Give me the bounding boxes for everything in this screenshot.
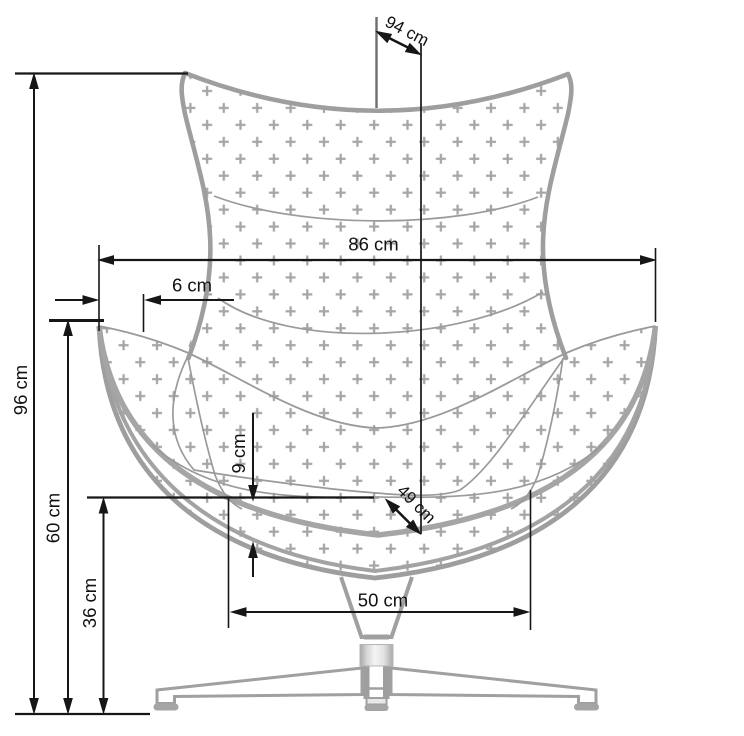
svg-text:60 cm: 60 cm <box>43 493 64 543</box>
svg-text:86 cm: 86 cm <box>348 234 398 255</box>
svg-text:96 cm: 96 cm <box>10 365 31 415</box>
svg-text:6 cm: 6 cm <box>172 275 212 296</box>
svg-text:9 cm: 9 cm <box>228 433 249 473</box>
svg-text:36 cm: 36 cm <box>79 578 100 628</box>
svg-text:50 cm: 50 cm <box>358 590 408 611</box>
